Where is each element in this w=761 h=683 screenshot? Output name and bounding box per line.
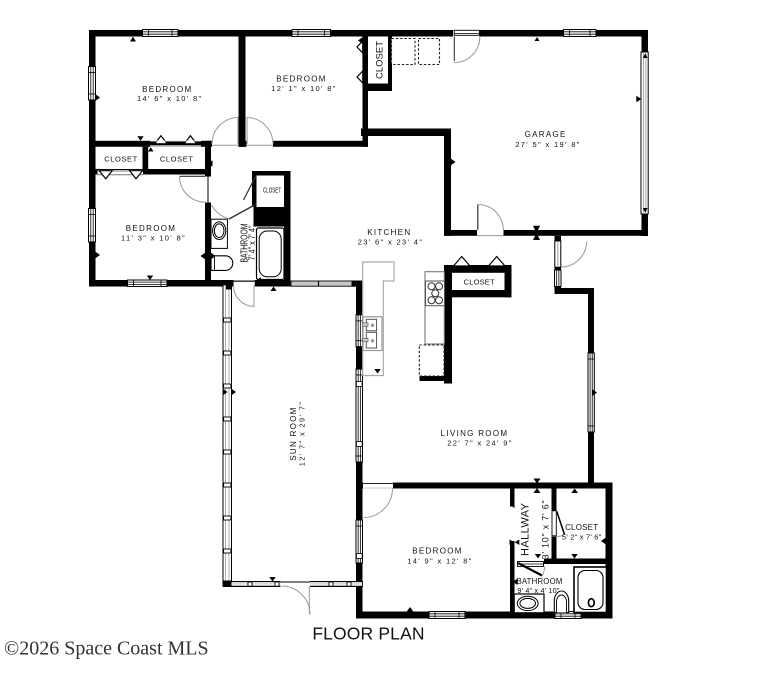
svg-text:CLOSET: CLOSET [104,155,138,164]
svg-text:12' 7" x 29' 7": 12' 7" x 29' 7" [297,401,306,467]
svg-text:GARAGE: GARAGE [525,130,567,139]
svg-text:BEDROOM: BEDROOM [142,85,192,94]
svg-text:11' 3" x 10' 8": 11' 3" x 10' 8" [121,234,186,243]
svg-text:14' 9" x 12' 8": 14' 9" x 12' 8" [407,557,473,566]
svg-text:14' 6" x 10' 8": 14' 6" x 10' 8" [137,94,203,103]
svg-text:22' 7" x 24' 9": 22' 7" x 24' 9" [447,438,513,447]
svg-text:FLOOR PLAN: FLOOR PLAN [312,623,424,643]
svg-text:HALLWAY: HALLWAY [520,502,532,556]
svg-text:3' 10" x 7' 6": 3' 10" x 7' 6" [540,500,550,560]
svg-text:9' 4" x 4' 10": 9' 4" x 4' 10" [517,586,559,595]
svg-text:CLOSET: CLOSET [263,188,281,195]
svg-text:27' 5" x 19' 8": 27' 5" x 19' 8" [515,140,581,149]
svg-text:BATHROOM: BATHROOM [516,577,562,586]
svg-text:5' 2" x 7' 6": 5' 2" x 7' 6" [562,533,602,542]
svg-text:CLOSET: CLOSET [565,523,598,532]
svg-text:23' 6" x 23' 4": 23' 6" x 23' 4" [358,237,424,246]
svg-text:BEDROOM: BEDROOM [126,224,176,233]
svg-text:BEDROOM: BEDROOM [412,547,462,556]
svg-text:©2026 Space Coast MLS: ©2026 Space Coast MLS [4,638,209,660]
svg-text:CLOSET: CLOSET [160,155,194,164]
svg-text:BEDROOM: BEDROOM [276,75,326,84]
svg-text:CLOSET: CLOSET [374,41,385,79]
svg-text:KITCHEN: KITCHEN [367,228,411,237]
svg-text:LIVING ROOM: LIVING ROOM [441,429,509,438]
svg-text:CLOSET: CLOSET [464,277,495,286]
svg-text:7' 4" x 7' 4": 7' 4" x 7' 4" [247,226,257,261]
svg-text:12' 1" x 10' 8": 12' 1" x 10' 8" [271,84,337,93]
